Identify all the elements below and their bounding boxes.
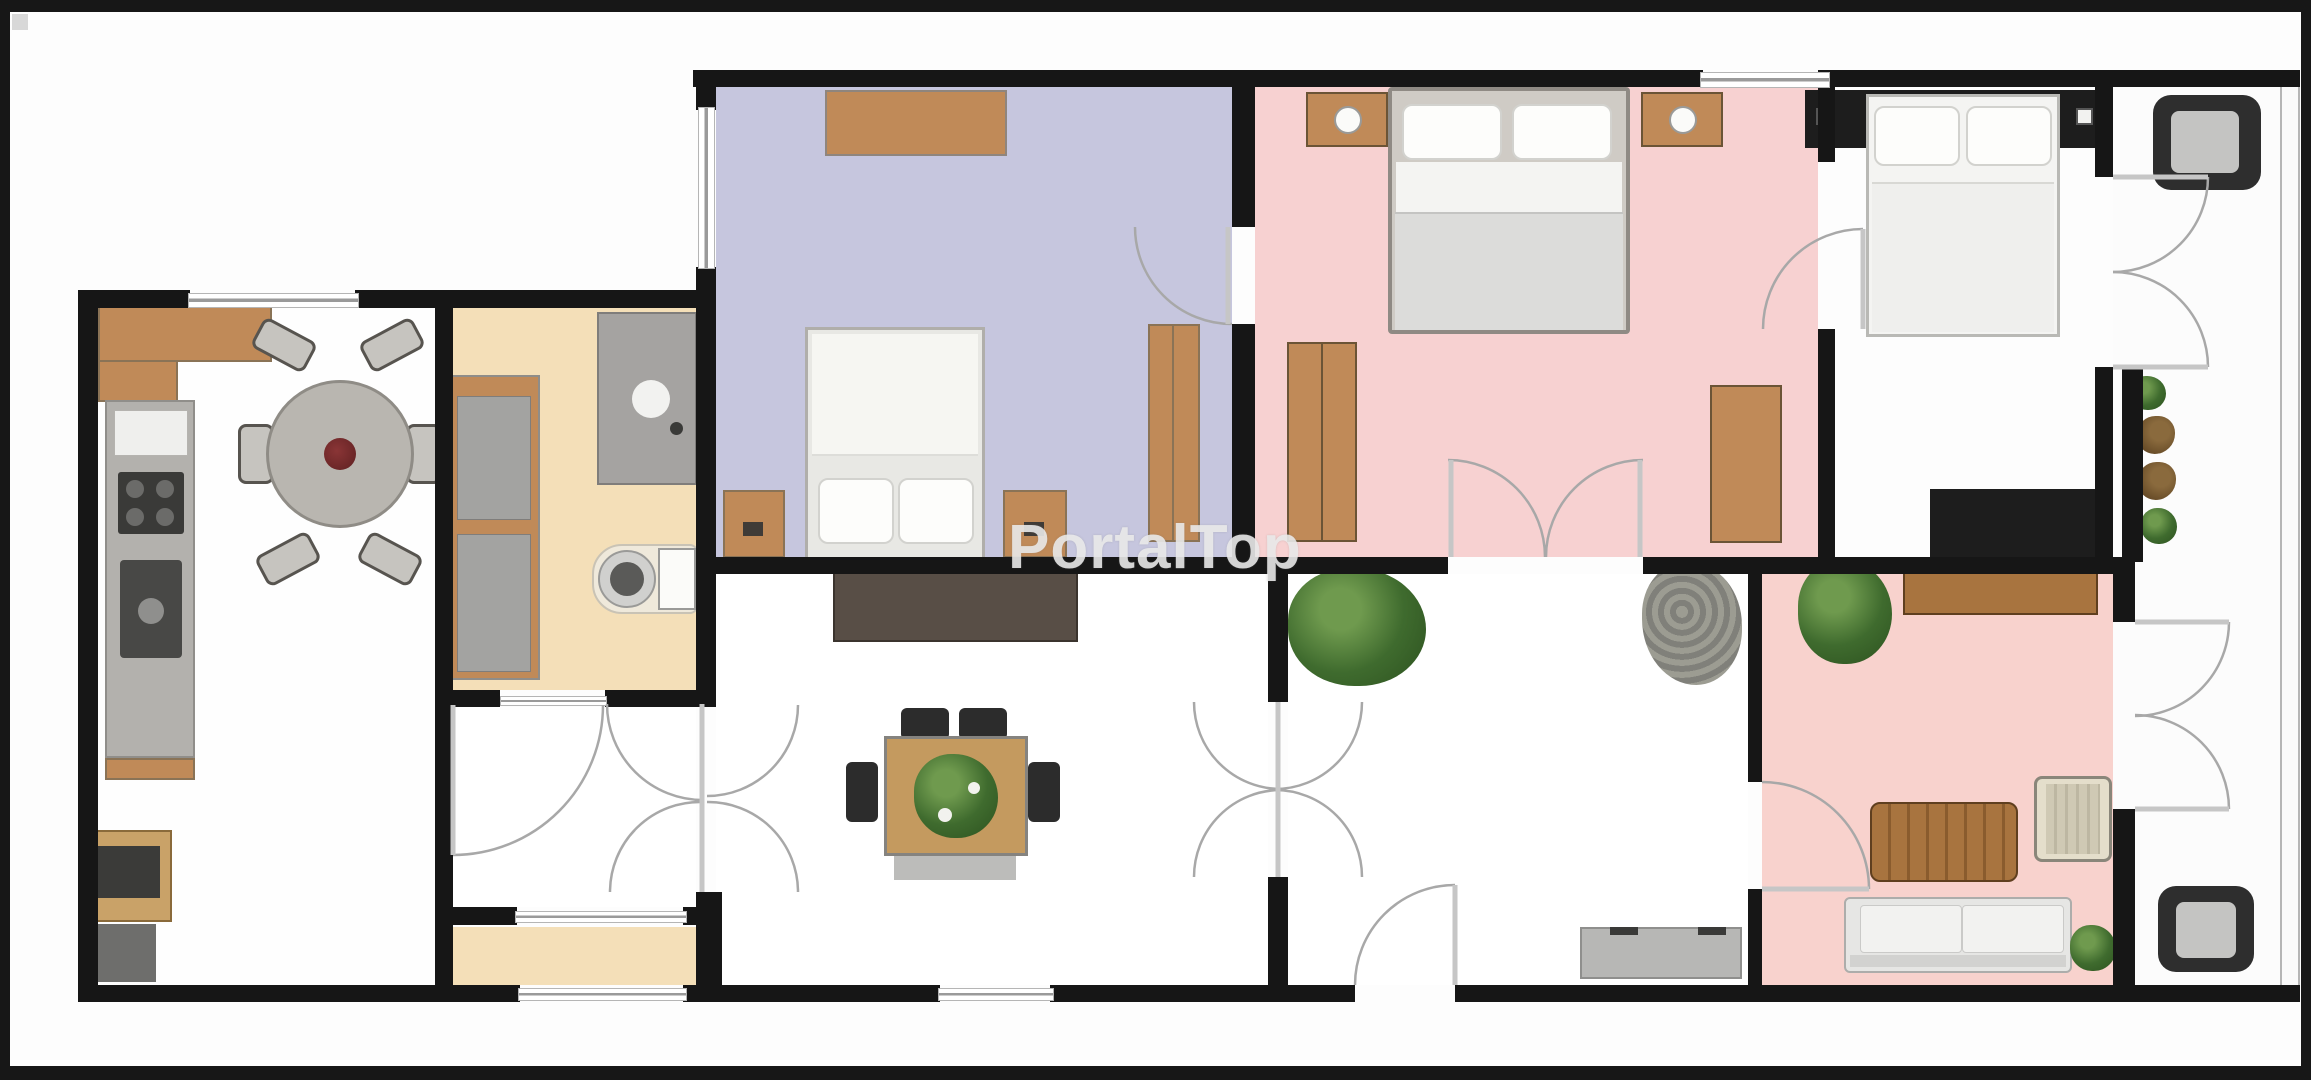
- wall: [2122, 369, 2143, 562]
- cutting-board-icon: [114, 410, 188, 456]
- wall: [1748, 574, 1762, 782]
- bed-pillow-icon: [1512, 104, 1612, 160]
- balcony-armchair-icon: [2153, 95, 2261, 190]
- shower-drain-icon: [632, 380, 670, 418]
- wall: [2113, 809, 2135, 985]
- bench-handle-icon: [1610, 927, 1638, 935]
- toilet-tank-icon: [658, 548, 696, 610]
- lamp-icon: [1669, 106, 1697, 134]
- wall: [2095, 367, 2113, 557]
- shower-knob-icon: [670, 422, 683, 435]
- sofa-cushion-icon: [1962, 905, 2064, 953]
- small-plant-icon: [2070, 925, 2116, 971]
- sconce-lamp-icon: [2076, 108, 2093, 125]
- bed-duvet-icon: [1872, 182, 2054, 332]
- toilet-bowl-icon: [610, 562, 644, 596]
- wall: [1825, 70, 2300, 87]
- floor-plan: PortalTop: [0, 0, 2311, 1080]
- frame-corner-chip: [12, 14, 28, 30]
- bath-cabinet-shelf-icon: [457, 396, 531, 520]
- sofa-cushion-icon: [1860, 905, 1962, 953]
- nightstand-knob-icon: [743, 522, 763, 536]
- balcony-plant-icon: [2141, 508, 2177, 544]
- wall: [696, 574, 716, 705]
- striped-armchair-cushion-icon: [2046, 784, 2100, 854]
- wall: [696, 267, 716, 574]
- bed-duvet-icon: [1395, 212, 1623, 330]
- wall: [453, 907, 517, 925]
- wall: [435, 308, 453, 707]
- oven-door-icon: [98, 846, 160, 898]
- bed-pillow-icon: [898, 478, 974, 544]
- burner-icon: [156, 480, 174, 498]
- watermark-text: PortalTop: [1008, 512, 1302, 583]
- faucet-icon: [138, 598, 164, 624]
- plant-flower-icon: [968, 782, 980, 794]
- wardrobe-icon: [1710, 385, 1782, 543]
- wall: [78, 290, 98, 1002]
- wall: [435, 707, 453, 985]
- wardrobe-icon: [1148, 324, 1200, 542]
- bed-pillow-icon: [818, 478, 894, 544]
- wall: [696, 70, 716, 110]
- dresser-icon: [825, 90, 1007, 156]
- window: [515, 911, 687, 923]
- base-cabinet-icon: [98, 924, 156, 982]
- coffee-table-icon: [1870, 802, 2018, 882]
- door-sill: [500, 696, 607, 706]
- burner-icon: [156, 508, 174, 526]
- plant-icon: [1288, 568, 1426, 686]
- lamp-icon: [1334, 106, 1362, 134]
- wall: [2113, 557, 2135, 622]
- table-plant-icon: [914, 754, 998, 838]
- wall: [78, 985, 520, 1002]
- window: [1700, 72, 1830, 88]
- room-vestibule: [453, 927, 700, 985]
- window: [188, 293, 359, 308]
- balcony-railing: [2280, 87, 2300, 985]
- wall: [355, 290, 696, 308]
- armchair-seat-icon: [2176, 902, 2236, 958]
- plant-icon: [1798, 560, 1892, 664]
- wall: [1050, 985, 1355, 1002]
- kitchen-cabinet-icon: [98, 360, 178, 402]
- window: [938, 988, 1054, 1001]
- wardrobe-divider-icon: [1321, 344, 1323, 540]
- bed-sheet-icon: [1396, 162, 1622, 212]
- cooktop-icon: [118, 472, 184, 534]
- sofa-back-icon: [1850, 955, 2066, 967]
- table-centerpiece-icon: [324, 438, 356, 470]
- armchair-seat-icon: [2171, 111, 2239, 173]
- wall: [1268, 574, 1288, 702]
- dining-chair-icon: [846, 762, 878, 822]
- bath-cabinet-shelf-icon: [457, 534, 531, 672]
- wall: [693, 70, 1703, 87]
- wall: [2095, 70, 2113, 177]
- bed-duvet-icon: [812, 334, 978, 456]
- balcony-armchair-icon: [2158, 886, 2254, 972]
- bed-pillow-icon: [1874, 106, 1960, 166]
- window: [518, 988, 687, 1001]
- wall: [1818, 329, 1835, 557]
- kitchen-cabinet-icon: [105, 758, 195, 780]
- desk-icon: [1930, 489, 2096, 559]
- kitchen-cabinet-icon: [98, 302, 272, 362]
- window: [698, 107, 715, 269]
- plant-flower-icon: [938, 808, 952, 822]
- sideboard-icon: [1903, 570, 2098, 615]
- bed-pillow-icon: [1402, 104, 1502, 160]
- room-hallway-left: [453, 707, 696, 907]
- wall: [1268, 877, 1288, 1002]
- wardrobe-divider-icon: [1172, 326, 1174, 540]
- burner-icon: [126, 480, 144, 498]
- bench-handle-icon: [1698, 927, 1726, 935]
- wall: [696, 892, 722, 1002]
- wall: [1643, 557, 2135, 574]
- bed-pillow-icon: [1966, 106, 2052, 166]
- wall: [1232, 70, 1255, 227]
- wall: [1455, 985, 2300, 1002]
- burner-icon: [126, 508, 144, 526]
- wall: [1748, 889, 1762, 985]
- dining-chair-icon: [1028, 762, 1060, 822]
